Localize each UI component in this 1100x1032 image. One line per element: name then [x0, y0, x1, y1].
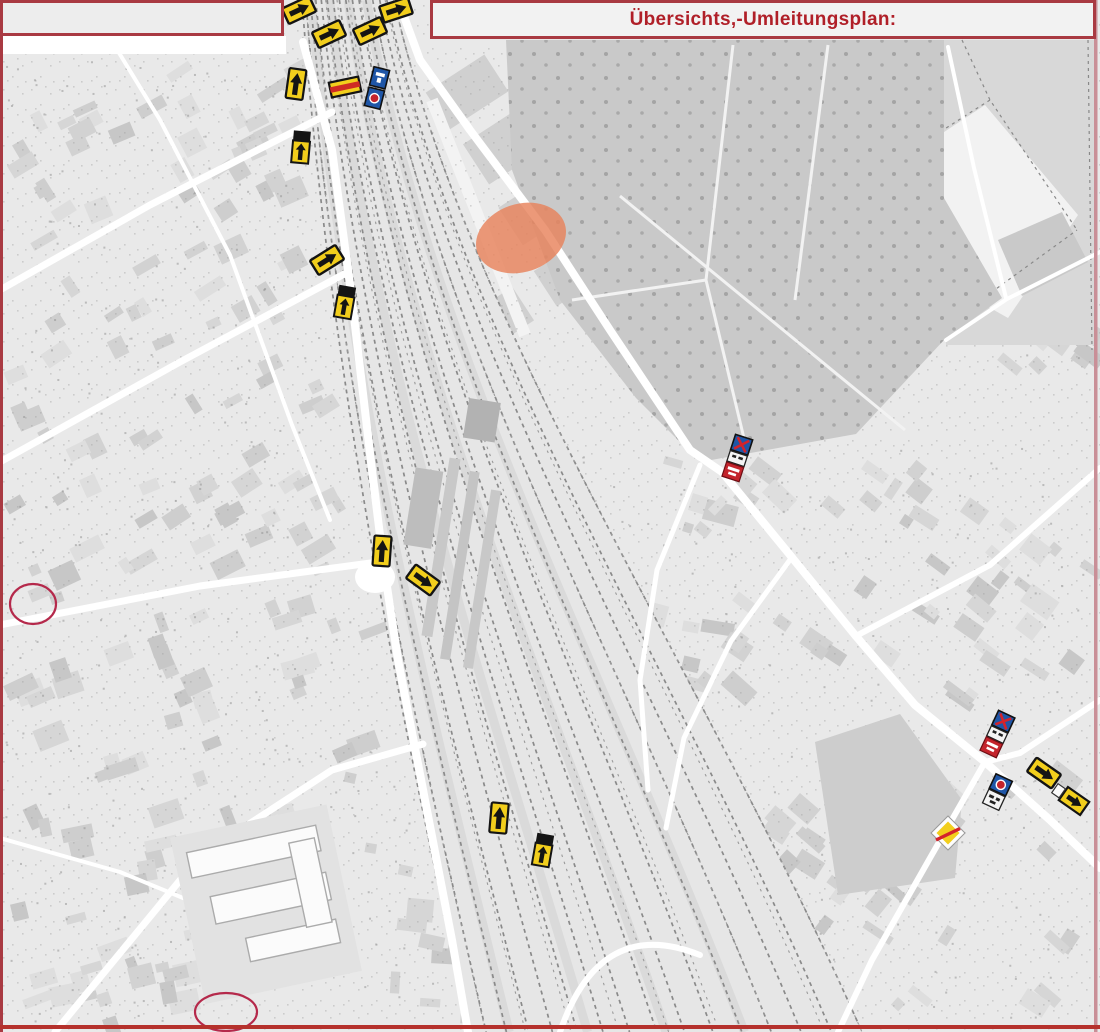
traffic-sign-detour-arrow-v	[489, 802, 509, 833]
plan-title: Übersichts,-Umleitungsplan:	[630, 9, 897, 31]
traffic-sign-detour-arrow-v	[285, 68, 306, 100]
plan-title-box: Übersichts,-Umleitungsplan:	[430, 0, 1096, 39]
traffic-sign-detour-arrow-v	[372, 535, 391, 566]
detour-plan-page: Übersichts,-Umleitungsplan:	[0, 0, 1100, 1032]
legend-box	[0, 0, 284, 36]
header-gap	[0, 36, 286, 54]
map-canvas	[0, 0, 1100, 1032]
traffic-sign-detour-arrow-top-bar	[291, 130, 311, 163]
